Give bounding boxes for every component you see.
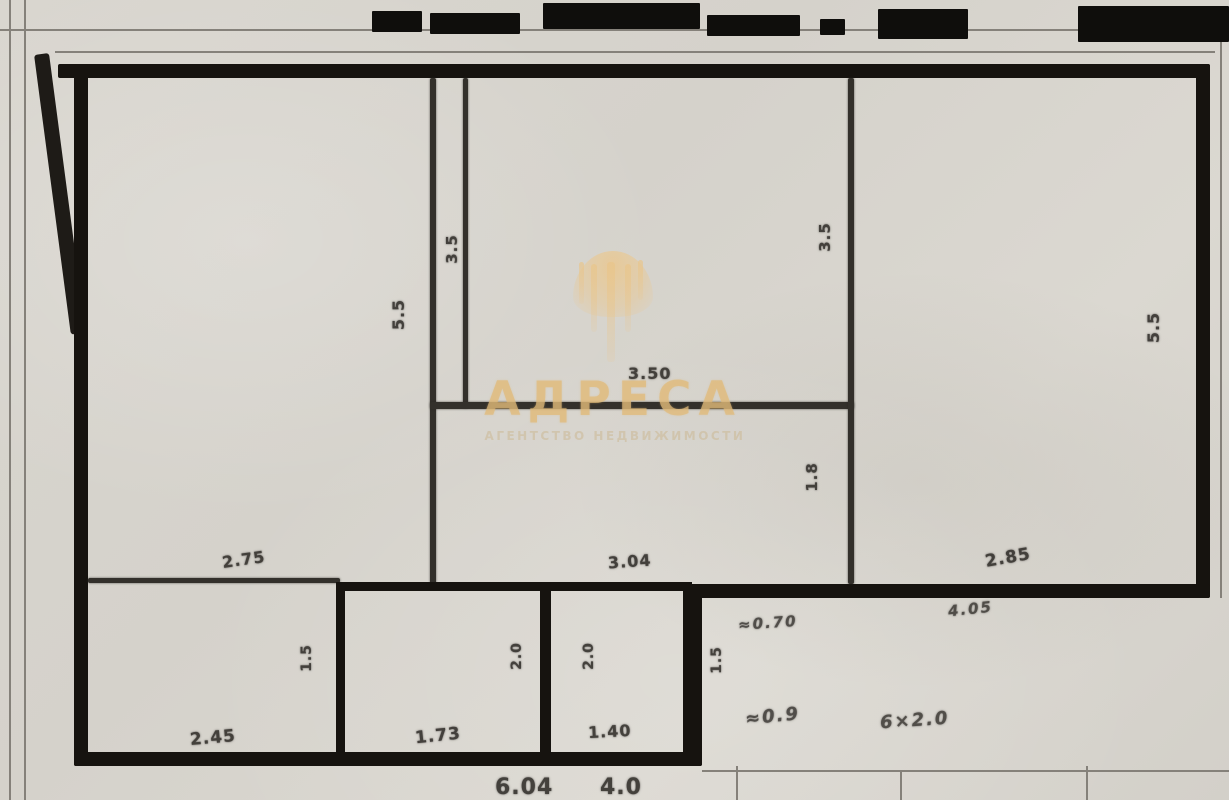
dimension-label: 6×2.0 bbox=[879, 708, 950, 734]
dimension-label: 2.45 bbox=[189, 726, 237, 750]
dimension-label: 1.5 bbox=[709, 646, 725, 674]
dimension-label: 1.40 bbox=[588, 721, 632, 742]
dimension-layer: 5.53.53.503.51.85.52.753.042.85≈0.704.05… bbox=[0, 0, 1229, 800]
dimension-label: 2.0 bbox=[509, 642, 525, 670]
dimension-label: 5.5 bbox=[389, 299, 408, 330]
dimension-label: 2.0 bbox=[581, 642, 597, 670]
dimension-label: 6.04 bbox=[495, 775, 553, 800]
dimension-label: 2.75 bbox=[221, 547, 267, 572]
dimension-label: 5.5 bbox=[1144, 312, 1163, 343]
floor-plan-scan: 5.53.53.503.51.85.52.753.042.85≈0.704.05… bbox=[0, 0, 1229, 800]
dimension-label: 2.85 bbox=[984, 544, 1033, 572]
dimension-label: 1.8 bbox=[803, 462, 821, 492]
dimension-label: 4.05 bbox=[947, 598, 994, 621]
dimension-label: 3.5 bbox=[816, 222, 834, 252]
dimension-label: ≈0.70 bbox=[737, 612, 798, 634]
dimension-label: 3.04 bbox=[607, 551, 652, 573]
dimension-label: 4.0 bbox=[600, 775, 642, 800]
dimension-label: 1.5 bbox=[299, 644, 315, 672]
dimension-label: 3.5 bbox=[443, 234, 461, 264]
dimension-label: 1.73 bbox=[414, 724, 462, 749]
dimension-label: ≈0.9 bbox=[744, 703, 801, 730]
dimension-label: 3.50 bbox=[628, 364, 671, 383]
